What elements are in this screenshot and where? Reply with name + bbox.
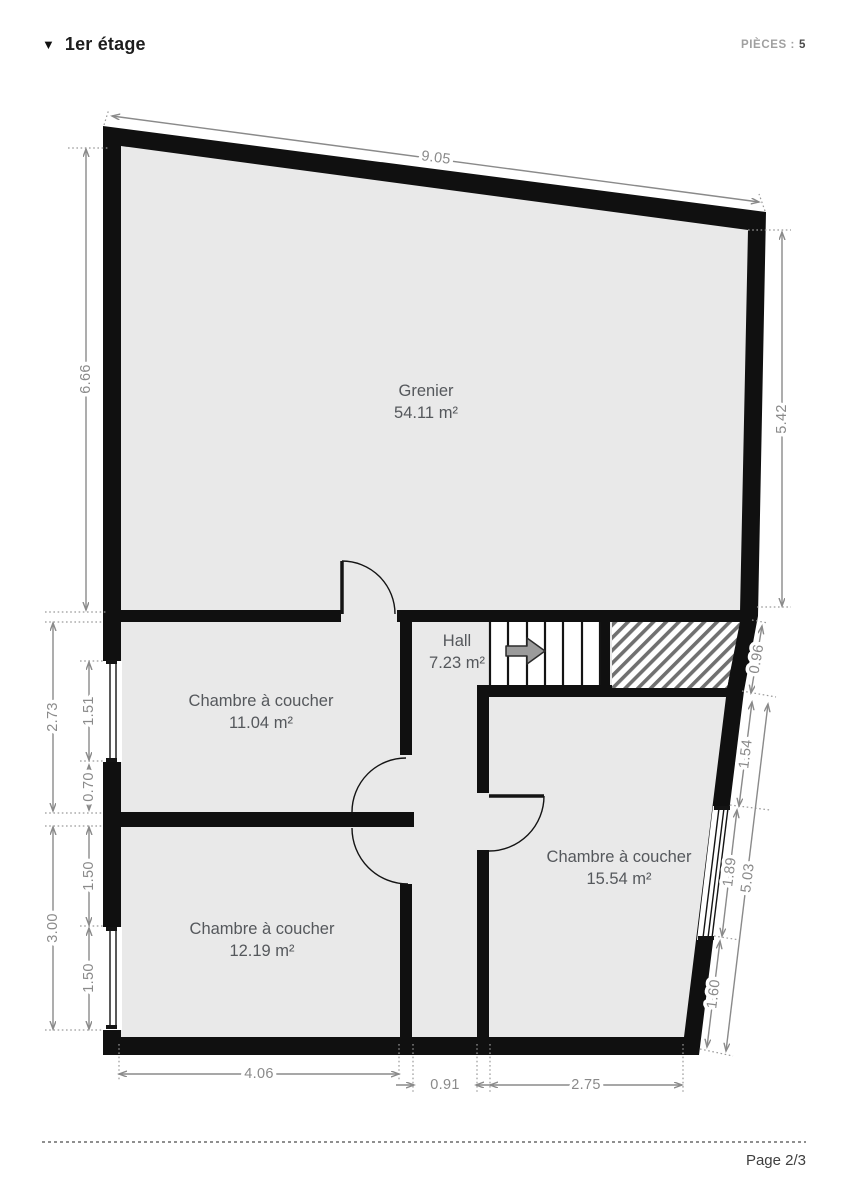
wall-corridor-right-lower bbox=[477, 850, 489, 1043]
interior-floor bbox=[121, 146, 748, 1037]
dimension-label: 5.42 bbox=[774, 404, 790, 433]
floor-plan: 9.05 6.66 5.42 2.73 1.51 0.70 3.00 1.50 … bbox=[0, 0, 848, 1200]
dimension-label: 1.51 bbox=[81, 696, 97, 725]
room-name-bedroom-right: Chambre à coucher bbox=[547, 848, 692, 866]
dimension-label: 3.00 bbox=[45, 913, 61, 942]
page-number: Page 2/3 bbox=[746, 1152, 806, 1169]
wall-bedrooms-divider bbox=[115, 812, 414, 827]
room-area-bedroom-lower-left: 12.19 m² bbox=[229, 942, 295, 960]
extension-line bbox=[759, 194, 765, 211]
dimension-label: 5.03 bbox=[738, 862, 757, 893]
dimension-label: 1.50 bbox=[81, 963, 97, 992]
dimension-label: 0.91 bbox=[430, 1077, 459, 1093]
dimension-label: 1.60 bbox=[704, 978, 723, 1009]
dimension-label: 1.89 bbox=[720, 856, 739, 887]
room-name-hall: Hall bbox=[443, 632, 471, 650]
room-area-hall: 7.23 m² bbox=[429, 654, 485, 672]
room-area-bedroom-upper-left: 11.04 m² bbox=[229, 714, 293, 732]
window-gap bbox=[102, 927, 122, 1030]
hatched-void-area bbox=[612, 622, 740, 688]
room-name-bedroom-upper-left: Chambre à coucher bbox=[189, 692, 334, 710]
dimension-label: 1.54 bbox=[736, 738, 755, 769]
wall-stairs-hatch-divider bbox=[600, 615, 610, 690]
footer-divider bbox=[42, 1141, 806, 1143]
dimension-label: 1.50 bbox=[81, 861, 97, 890]
wall-corridor-left bbox=[400, 884, 412, 1043]
dimension-label: 9.05 bbox=[420, 148, 451, 168]
wall-hall-left-upper bbox=[400, 615, 412, 755]
extension-line bbox=[730, 805, 770, 810]
dimension-label: 6.66 bbox=[78, 364, 94, 393]
window-left-lower bbox=[102, 927, 122, 1030]
dimension-label: 2.73 bbox=[45, 702, 61, 731]
stairs bbox=[490, 622, 600, 685]
dimension-label: 0.70 bbox=[81, 772, 97, 801]
extension-line bbox=[742, 691, 776, 697]
room-area-bedroom-right: 15.54 m² bbox=[586, 870, 652, 888]
window-left-upper bbox=[102, 661, 122, 762]
room-name-grenier: Grenier bbox=[398, 382, 454, 400]
room-name-bedroom-lower-left: Chambre à coucher bbox=[190, 920, 335, 938]
building-shell bbox=[103, 126, 766, 1055]
dimension-label: 4.06 bbox=[244, 1066, 273, 1082]
wall-grenier-bottom-right bbox=[397, 610, 750, 622]
wall-corridor-right-upper bbox=[477, 685, 489, 793]
extension-line bbox=[104, 109, 109, 125]
dimension-label: 2.75 bbox=[571, 1077, 600, 1093]
extension-line bbox=[700, 1049, 733, 1056]
window-gap bbox=[102, 661, 122, 762]
wall-grenier-bottom-left bbox=[103, 610, 341, 622]
extension-line bbox=[714, 936, 740, 940]
room-area-grenier: 54.11 m² bbox=[394, 404, 458, 422]
